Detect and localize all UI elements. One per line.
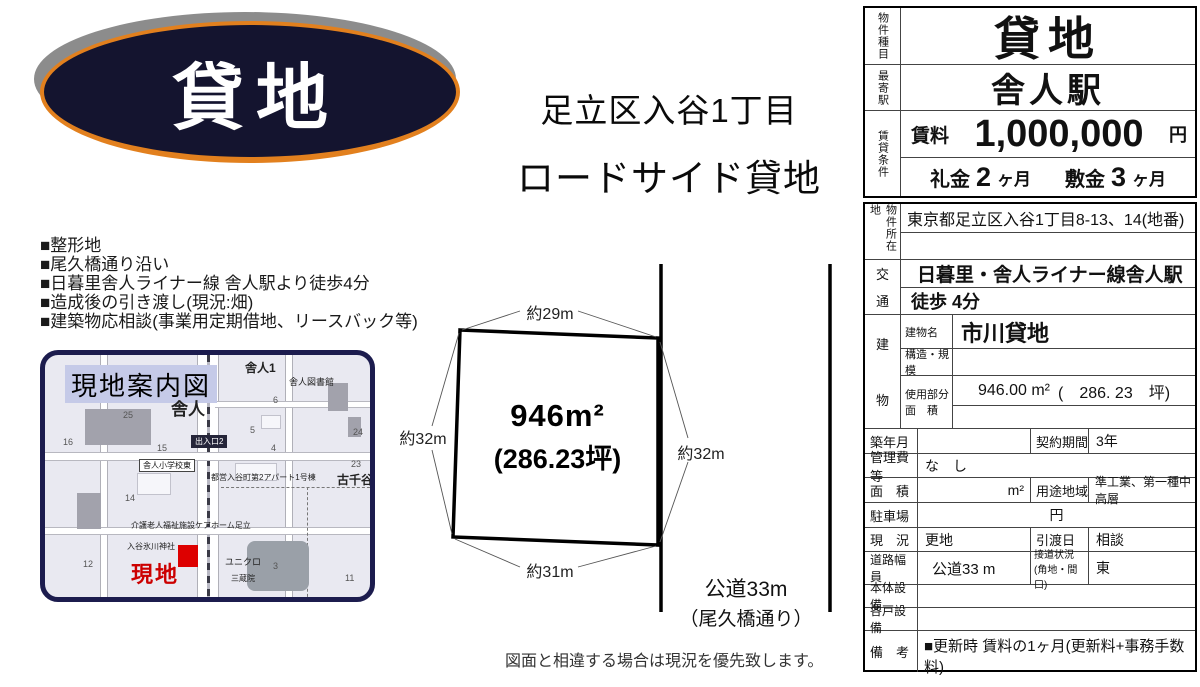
key-money-unit: ヶ月 bbox=[997, 165, 1031, 190]
main-equip-value bbox=[918, 585, 1195, 607]
feature-item: ■日暮里舎人ライナー線 舎人駅より徒歩4分 bbox=[40, 274, 418, 293]
access-label-cell: 交 通 bbox=[865, 260, 901, 314]
building-name-value: 市川貸地 bbox=[953, 315, 1195, 348]
used-area-label: 使用部分 面 積 bbox=[901, 376, 953, 428]
address-value: 東京都足立区入谷1丁目8-13、14(地番) bbox=[901, 206, 1184, 230]
structure-label: 構造・規模 bbox=[901, 349, 953, 375]
map-number: 14 bbox=[125, 493, 135, 503]
access-line1: 日暮里・舎人ライナー線舎人駅 bbox=[901, 260, 1183, 287]
spec-table-top: 物件種目 貸地 最寄駅 舎人駅 賃貸条件 賃料 1,000,000 円 礼金 2… bbox=[863, 6, 1197, 198]
dim-bottom: 約31m bbox=[512, 558, 588, 582]
zoning-value: 準工業、第一種中高層 bbox=[1089, 478, 1195, 502]
terms-label-cell: 賃貸条件 bbox=[865, 111, 901, 196]
badge-oval: 貸地 bbox=[40, 21, 460, 163]
frontage-value: 東 bbox=[1089, 552, 1195, 584]
headline-line2: ロードサイド貸地 bbox=[483, 148, 855, 202]
map-label-library: 舎人図書館 bbox=[289, 375, 334, 388]
site-label: 現地 bbox=[131, 557, 179, 589]
map-label-uniqlo: ユニクロ bbox=[225, 555, 261, 568]
unit-equip-label: 各戸設備 bbox=[865, 608, 918, 630]
map-label-care-home: 介護老人福祉施設ケアホーム足立 bbox=[131, 520, 251, 531]
remarks-label: 備 考 bbox=[865, 631, 918, 672]
access-line2: 徒歩 4分 bbox=[901, 288, 980, 314]
dim-left: 約32m bbox=[398, 425, 448, 449]
rent-value: 1,000,000 bbox=[949, 113, 1169, 156]
parking-value: 円 bbox=[918, 503, 1195, 527]
map-number: 3 bbox=[273, 561, 278, 571]
area-m2: 946m² bbox=[455, 398, 660, 434]
cross-road bbox=[45, 452, 370, 461]
feature-item: ■建築物応相談(事業用定期借地、リースバック等) bbox=[40, 312, 418, 331]
road-width-value: 公道33 m bbox=[918, 552, 1031, 584]
map-label-town: 舎人1 bbox=[245, 359, 276, 376]
badge-label: 貸地 bbox=[160, 39, 340, 144]
headline: 足立区入谷1丁目 ロードサイド貸地 bbox=[483, 84, 855, 202]
contract-label: 契約期間 bbox=[1031, 429, 1089, 453]
zoning-label: 用途地域 bbox=[1031, 478, 1089, 502]
deposit-value: 3 bbox=[1111, 162, 1126, 193]
key-money-value: 2 bbox=[976, 162, 991, 193]
key-money-label: 礼金 bbox=[930, 163, 970, 192]
building-name-label: 建物名 bbox=[901, 315, 953, 348]
map-number: 6 bbox=[273, 395, 278, 405]
map-label-district: 古千谷 bbox=[337, 471, 373, 488]
map-number: 12 bbox=[83, 559, 93, 569]
headline-line1: 足立区入谷1丁目 bbox=[483, 84, 855, 132]
map-number: 16 bbox=[63, 437, 73, 447]
building-block bbox=[77, 493, 101, 529]
area-label: 面 積 bbox=[865, 478, 918, 502]
feature-list: ■整形地 ■尾久橋通り沿い ■日暮里舎人ライナー線 舎人駅より徒歩4分 ■造成後… bbox=[40, 236, 418, 331]
handover-value: 相談 bbox=[1089, 528, 1195, 551]
kashichi-badge: 貸地 bbox=[32, 12, 464, 168]
remarks-value: ■更新時 賃料の1ヶ月(更新料+事務手数料) bbox=[918, 631, 1195, 672]
road-width: 公道33m bbox=[655, 573, 837, 603]
map-block bbox=[137, 473, 171, 495]
deposit-unit: ヶ月 bbox=[1132, 165, 1166, 190]
rent-unit: 円 bbox=[1169, 121, 1195, 147]
map-number: 4 bbox=[271, 443, 276, 453]
map-label-school-crossing: 舎人小学校東 bbox=[139, 459, 195, 472]
contract-value: 3年 bbox=[1089, 429, 1195, 453]
deposit-label: 敷金 bbox=[1065, 163, 1105, 192]
property-type-label-cell: 物件種目 bbox=[865, 8, 901, 64]
map-label-apartment: 都営入谷町第2アパート1号棟 bbox=[211, 472, 316, 483]
building-block bbox=[85, 409, 151, 445]
site-marker bbox=[178, 545, 198, 567]
map-number: 5 bbox=[250, 425, 255, 435]
map-label-shrine: 入谷氷川神社 bbox=[127, 541, 175, 552]
map-number: 15 bbox=[157, 443, 167, 453]
status-value: 更地 bbox=[918, 528, 1031, 551]
location-map: 現地案内図 舎人1 舎人図書館 舎人 出入口2 舎人小学校東 古千谷 都営入谷町… bbox=[40, 350, 375, 602]
dim-top: 約29m bbox=[512, 300, 588, 324]
frontage-label: 接道状況 (角地・間口) bbox=[1031, 552, 1089, 584]
parcel-area: 946m² (286.23坪) bbox=[455, 398, 660, 476]
property-type-value: 貸地 bbox=[901, 8, 1195, 64]
area-tsubo: (286.23坪) bbox=[455, 437, 660, 476]
building-label-cell: 建 物 bbox=[865, 315, 901, 428]
map-number: 23 bbox=[351, 459, 361, 469]
rent-label: 賃料 bbox=[901, 121, 949, 148]
road-label: 公道33m （尾久橋通り） bbox=[655, 573, 837, 631]
map-label-station: 舎人 bbox=[171, 395, 205, 420]
structure-value bbox=[953, 349, 1195, 375]
used-area-value: 946.00 m² bbox=[978, 382, 1050, 400]
map-label-exit: 出入口2 bbox=[191, 435, 227, 448]
feature-item: ■造成後の引き渡し(現況:畑) bbox=[40, 293, 418, 312]
station-label-cell: 最寄駅 bbox=[865, 65, 901, 110]
map-number: 24 bbox=[353, 427, 363, 437]
location-label-cell: 物件所在地 bbox=[865, 204, 901, 259]
spec-table-main: 物件所在地 東京都足立区入谷1丁目8-13、14(地番) 交 通 日暮里・舎人ラ… bbox=[863, 202, 1197, 672]
mgmt-label: 管理費等 bbox=[865, 454, 918, 477]
map-block bbox=[261, 415, 281, 429]
status-label: 現 況 bbox=[865, 528, 918, 551]
unit-equip-value bbox=[918, 608, 1195, 630]
parking-label: 駐車場 bbox=[865, 503, 918, 527]
area-value: m² bbox=[918, 478, 1031, 502]
map-number: 25 bbox=[123, 410, 133, 420]
station-value: 舎人駅 bbox=[901, 65, 1195, 110]
used-area-tsubo: ( 286. 23 坪) bbox=[1058, 379, 1170, 403]
flyer-page: 貸地 足立区入谷1丁目 ロードサイド貸地 ■整形地 ■尾久橋通り沿い ■日暮里舎… bbox=[0, 0, 1200, 687]
map-label-temple: 三蔵院 bbox=[231, 573, 255, 584]
dim-right: 約32m bbox=[676, 440, 726, 464]
built-value bbox=[918, 429, 1031, 453]
feature-item: ■整形地 bbox=[40, 236, 418, 255]
map-number: 11 bbox=[345, 573, 354, 583]
disclaimer-note: 図面と相違する場合は現況を優先致します。 bbox=[505, 647, 823, 671]
feature-item: ■尾久橋通り沿い bbox=[40, 255, 418, 274]
road-name: （尾久橋通り） bbox=[655, 604, 837, 631]
